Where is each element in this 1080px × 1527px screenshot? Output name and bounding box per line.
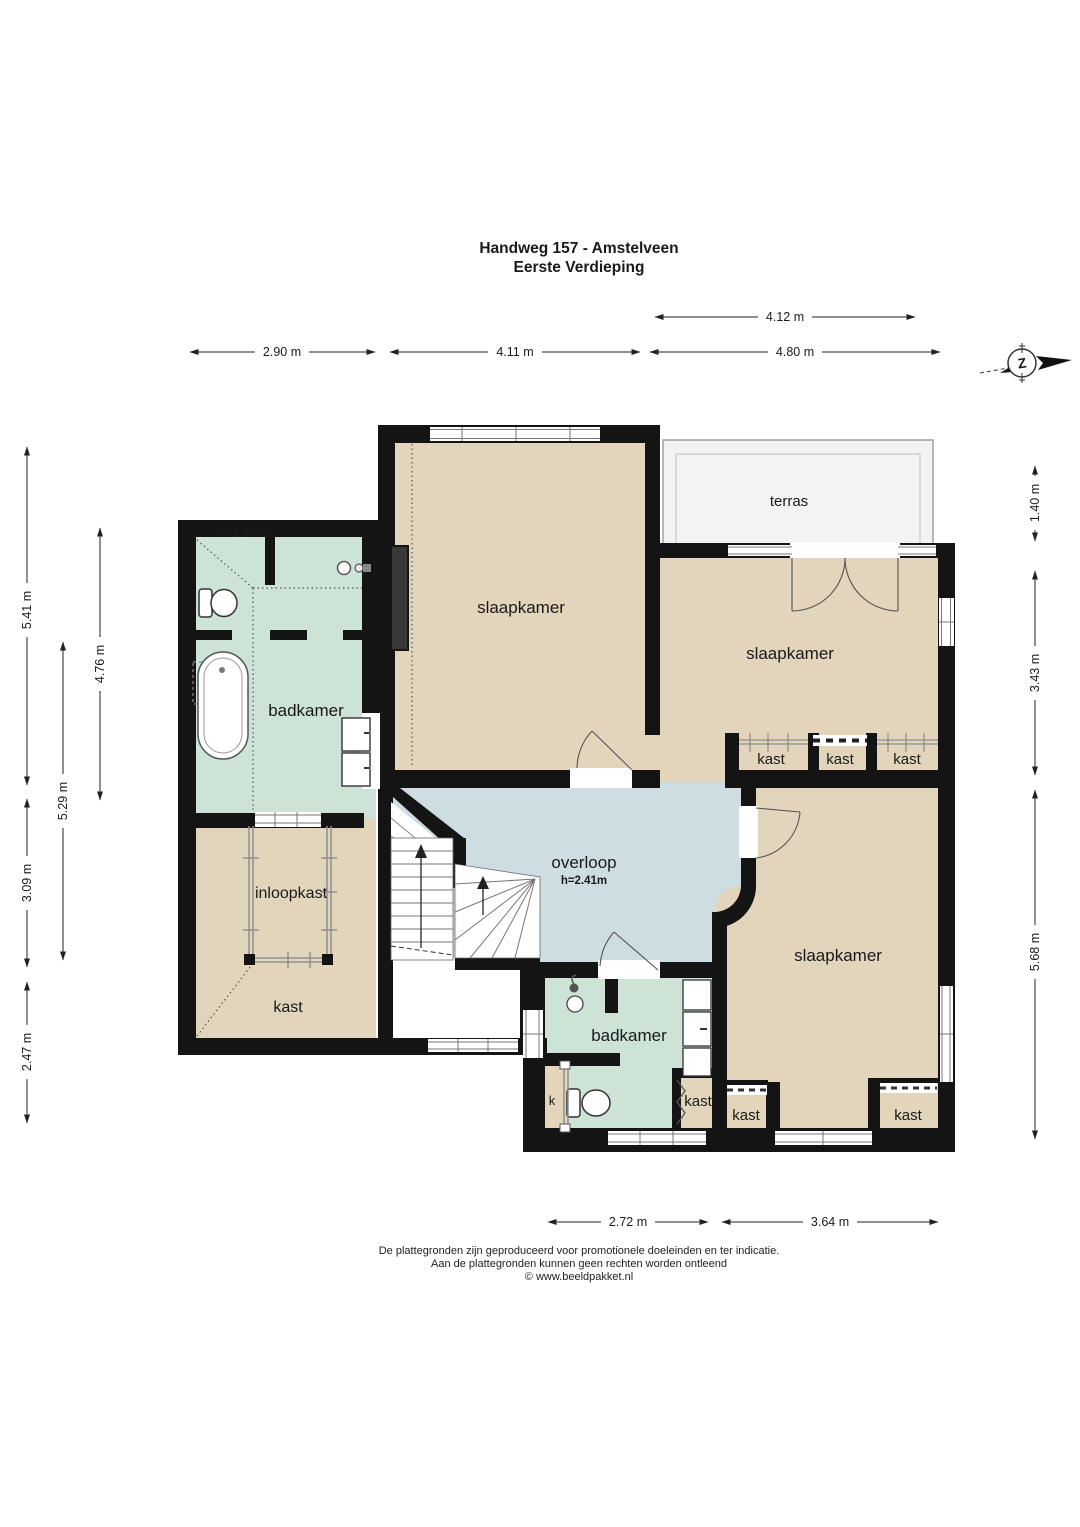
- window-terras-right: [898, 545, 936, 556]
- cabinet-s: [683, 980, 711, 1076]
- label-slaapkamer-se: slaapkamer: [794, 946, 882, 965]
- window-slaapkamer-se-right: [940, 986, 953, 1082]
- dim-top-3: 4.80 m: [776, 345, 814, 359]
- label-k-closet: k: [549, 1093, 556, 1108]
- label-inloopkast: inloopkast: [255, 885, 328, 902]
- kast-row-middle-door: [813, 735, 867, 746]
- window-terras-left: [728, 545, 792, 556]
- dim-top-1: 2.90 m: [263, 345, 301, 359]
- door-gap-slaapkamer-n: [570, 768, 632, 788]
- footer-line1: De plattegronden zijn geproduceerd voor …: [379, 1245, 780, 1257]
- dim-bottom-0: 2.72 m: [609, 1215, 647, 1229]
- label-kast-row-2: kast: [826, 751, 854, 768]
- label-badkamer-nw: badkamer: [268, 701, 344, 720]
- dim-right-2: 5.68 m: [1028, 933, 1042, 971]
- label-kast-nw: kast: [273, 999, 303, 1016]
- label-kast-s: kast: [684, 1093, 712, 1110]
- label-badkamer-nw-height: h=1.50m: [220, 528, 266, 540]
- kast-sw-door: [727, 1085, 767, 1095]
- bathtub: [193, 652, 248, 759]
- dim-top-0: 4.12 m: [766, 310, 804, 324]
- dim-left-0: 5.41 m: [20, 591, 34, 629]
- label-badkamer-s: badkamer: [591, 1026, 667, 1045]
- shaft: [391, 546, 408, 650]
- label-kast-sw: kast: [732, 1107, 760, 1124]
- compass-icon: Z: [980, 343, 1072, 383]
- dim-left-1: 4.76 m: [93, 645, 107, 683]
- room-void: [390, 958, 523, 1042]
- door-gap-terras: [790, 543, 900, 558]
- dim-left-2: 5.29 m: [56, 782, 70, 820]
- toilet-nw: [199, 589, 237, 617]
- dim-bottom-1: 3.64 m: [811, 1215, 849, 1229]
- label-kast-row-3: kast: [893, 751, 921, 768]
- page-title-line1: Handweg 157 - Amstelveen: [479, 240, 678, 257]
- door-gap-badkamer-s: [598, 960, 660, 979]
- label-terras: terras: [770, 493, 808, 510]
- toilet-s: [567, 1089, 610, 1117]
- footer-line3: © www.beeldpakket.nl: [525, 1271, 633, 1283]
- window-badkamer-s-bottom: [608, 1131, 706, 1145]
- footer-line2: Aan de plattegronden kunnen geen rechten…: [431, 1258, 727, 1270]
- window-badkamer-nw-bottom: [255, 812, 321, 827]
- window-slaapkamer-n-top: [430, 427, 600, 441]
- floorplan-svg: 4.12 m 2.90 m 4.11 m 4.80 m 2.72 m 3.64 …: [0, 0, 1080, 1527]
- window-badkamer-s-left: [523, 1010, 543, 1058]
- dim-right-0: 1.40 m: [1028, 484, 1042, 522]
- page-title-line2: Eerste Verdieping: [514, 259, 645, 276]
- label-kast-se: kast: [894, 1107, 922, 1124]
- label-overloop: overloop: [551, 853, 616, 872]
- floorplan-page: 4.12 m 2.90 m 4.11 m 4.80 m 2.72 m 3.64 …: [0, 0, 1080, 1527]
- dim-top-2: 4.11 m: [496, 345, 533, 359]
- label-kast-row-1: kast: [757, 751, 785, 768]
- label-slaapkamer-ne: slaapkamer: [746, 644, 834, 663]
- dim-right-1: 3.43 m: [1028, 654, 1042, 692]
- title-block: Handweg 157 - Amstelveen Eerste Verdiepi…: [479, 240, 678, 276]
- door-gap-slaapkamer-se: [739, 806, 758, 858]
- window-void-bottom: [428, 1039, 518, 1052]
- kast-se-door: [880, 1083, 937, 1093]
- dim-left-3: 3.09 m: [20, 864, 34, 902]
- window-slaapkamer-se-bottom: [775, 1131, 872, 1145]
- window-slaapkamer-ne-right: [939, 598, 954, 646]
- dim-left-4: 2.47 m: [20, 1033, 34, 1071]
- footer-block: De plattegronden zijn geproduceerd voor …: [379, 1245, 780, 1283]
- label-overloop-height: h=2.41m: [561, 875, 607, 887]
- label-slaapkamer-n: slaapkamer: [477, 598, 565, 617]
